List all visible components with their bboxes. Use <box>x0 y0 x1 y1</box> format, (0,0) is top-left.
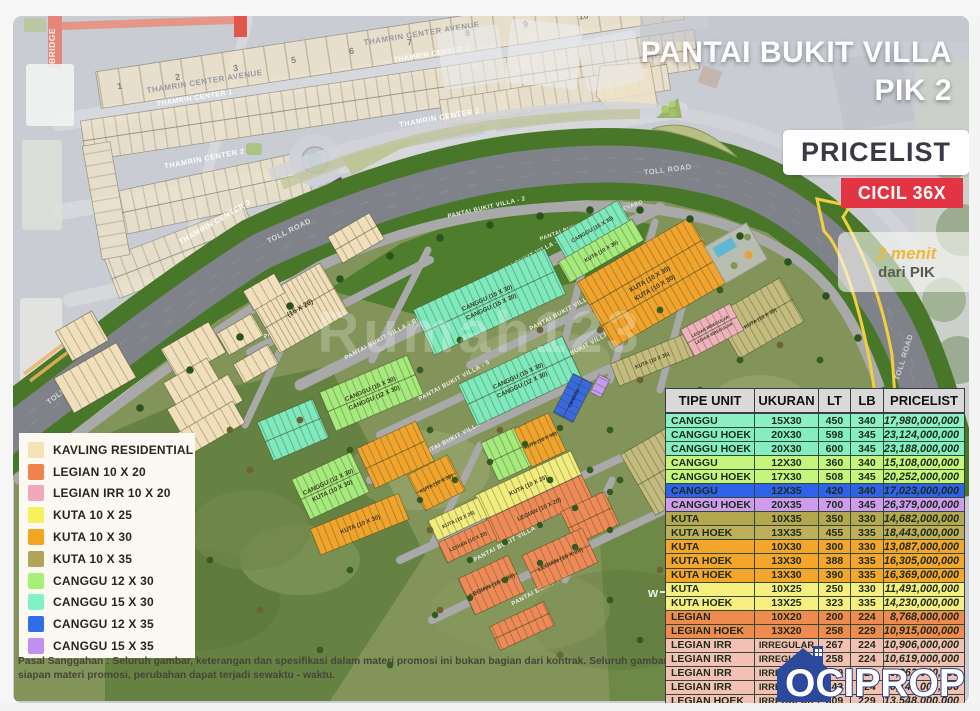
svg-text:w: w <box>647 585 659 600</box>
svg-text:OCIPROP: OCIPROP <box>785 662 965 705</box>
svg-text:BRIDGE: BRIDGE <box>47 28 57 64</box>
svg-text:Rumah123: Rumah123 <box>317 300 642 365</box>
